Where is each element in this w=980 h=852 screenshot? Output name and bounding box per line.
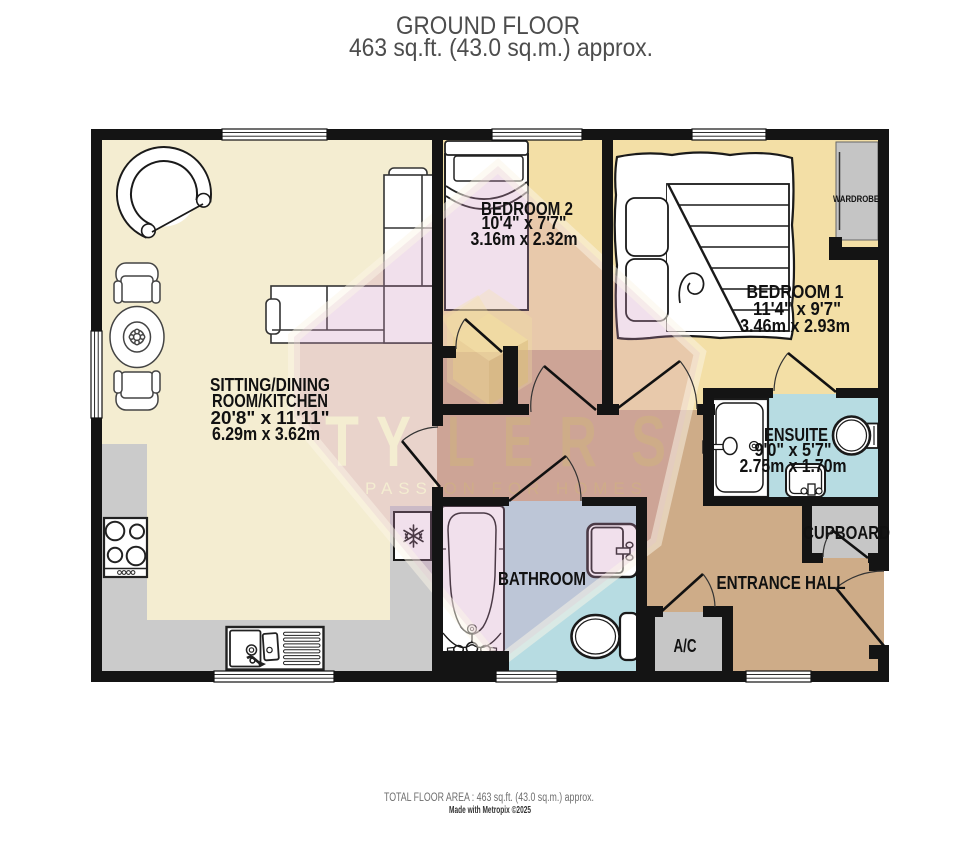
svg-text:TOTAL FLOOR AREA : 463 sq.ft.: TOTAL FLOOR AREA : 463 sq.ft. (43.0 sq.m… [384,792,594,804]
svg-text:3.16m x 2.32m: 3.16m x 2.32m [471,229,578,249]
svg-text:2.75m x 1.70m: 2.75m x 1.70m [740,456,847,476]
svg-text:463 sq.ft. (43.0 sq.m.) approx: 463 sq.ft. (43.0 sq.m.) approx. [349,34,653,62]
svg-text:BATHROOM: BATHROOM [498,569,586,589]
svg-text:3.46m x 2.93m: 3.46m x 2.93m [740,316,850,336]
svg-text:A/C: A/C [674,636,697,656]
svg-text:Made with Metropix ©2025: Made with Metropix ©2025 [449,805,531,816]
svg-text:6.29m x 3.62m: 6.29m x 3.62m [212,424,320,444]
svg-text:ENTRANCE HALL: ENTRANCE HALL [717,573,846,593]
svg-text:CUPBOARD: CUPBOARD [803,523,890,543]
svg-text:WARDROBE: WARDROBE [833,194,879,205]
